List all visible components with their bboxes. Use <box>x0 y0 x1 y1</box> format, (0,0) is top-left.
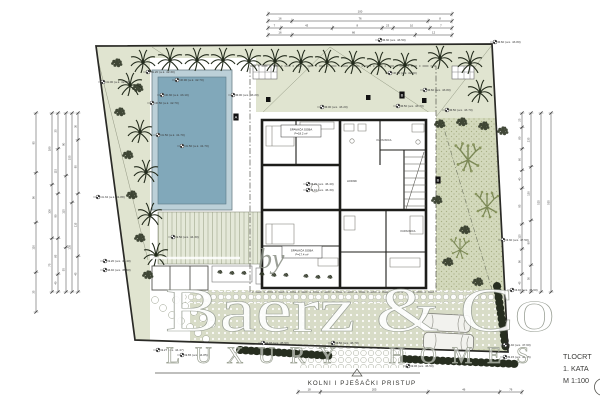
svg-text:30: 30 <box>74 124 78 128</box>
svg-text:66: 66 <box>352 31 356 35</box>
svg-text:40: 40 <box>518 177 522 181</box>
level-label: 3.10 (a.k. 46.30) <box>311 188 334 192</box>
svg-text:80: 80 <box>518 136 522 140</box>
level-label: 0.50 (a.k. 43.70) <box>450 108 473 112</box>
svg-text:76: 76 <box>509 388 513 392</box>
svg-text:90: 90 <box>32 196 36 200</box>
svg-text:95: 95 <box>518 204 522 208</box>
svg-text:75: 75 <box>48 263 52 267</box>
svg-text:60: 60 <box>518 158 522 162</box>
section-marker: B <box>399 92 404 99</box>
svg-text:205: 205 <box>372 388 377 392</box>
svg-text:95: 95 <box>32 141 36 145</box>
level-marker: -1.50 (a.k. 41.70) <box>177 144 209 148</box>
room-name-label: KUPAONICA <box>400 229 415 233</box>
room-name-label: HODNIK <box>347 179 357 183</box>
bush-icon <box>497 126 508 135</box>
level-marker: -0.80 (a.k. 42.40) <box>385 71 417 75</box>
level-label: 0.50 (a.k. 43.70) <box>401 104 424 108</box>
svg-text:76: 76 <box>358 17 362 21</box>
building <box>262 120 426 288</box>
level-label: -0.90 (a.k. 42.70) <box>180 78 204 82</box>
svg-text:85: 85 <box>54 254 58 258</box>
level-label: -1.00 (a.k. 42.20) <box>106 80 130 84</box>
level-label: -1.20 (a.k. 42.30) <box>151 70 175 74</box>
level-marker: 0.30 (a.k. 43.50) <box>375 38 406 42</box>
level-label: -1.32 (a.k. 41.88) <box>101 195 125 199</box>
room-name-label: KUPAONICA <box>376 138 391 142</box>
level-marker: -1.20 (a.k. 42.30) <box>143 70 175 74</box>
section-marker: A <box>233 114 238 121</box>
svg-text:7: 7 <box>274 24 276 28</box>
title-drawing: TLOCRT <box>563 352 592 361</box>
watermark-by: by <box>258 244 285 275</box>
svg-text:A: A <box>235 115 238 120</box>
title-floor: 1. KATA <box>563 364 589 373</box>
svg-text:90: 90 <box>518 260 522 264</box>
svg-text:555: 555 <box>547 200 551 205</box>
level-label: 2.40 (a.k. 45.60) <box>108 268 131 272</box>
level-label: 0.00 (a.k. 43.20) <box>325 105 348 109</box>
north-symbol-partial <box>595 379 600 396</box>
svg-text:90: 90 <box>54 214 58 218</box>
level-marker: -0.90 (a.k. 42.70) <box>172 78 204 82</box>
level-label: -0.30 (a.k. 43.10) <box>165 93 189 97</box>
title-scale: M 1:100 <box>563 376 589 385</box>
svg-text:130: 130 <box>527 191 531 196</box>
access-road: KOLNI I PJEŠAČKI PRISTUP <box>155 369 420 387</box>
svg-text:B: B <box>401 93 404 98</box>
level-marker: -1.00 (a.k. 42.20) <box>98 80 130 84</box>
svg-text:B: B <box>437 178 440 183</box>
svg-text:8: 8 <box>356 24 358 28</box>
level-marker: 1.20 (a.k. 46.40) <box>100 259 131 263</box>
svg-text:115: 115 <box>518 234 522 239</box>
room-label: SPAVAĆA SOBAP=17.4 m² <box>282 246 322 258</box>
svg-text:525: 525 <box>537 200 541 205</box>
svg-text:25: 25 <box>518 118 522 122</box>
svg-text:115: 115 <box>62 209 66 214</box>
level-marker: 3.10 (a.k. 46.30) <box>303 188 334 192</box>
site-plan-canvas: -1.00 (a.k. 42.20)-1.20 (a.k. 42.30)-0.9… <box>0 0 600 400</box>
level-label: -0.50 (a.k. 42.70) <box>155 101 179 105</box>
svg-text:8: 8 <box>439 17 441 21</box>
level-label: -0.80 (a.k. 42.40) <box>393 71 417 75</box>
watermark-tagline: LUXURY HOMES <box>166 343 544 368</box>
svg-text:100: 100 <box>48 209 52 214</box>
level-label: 0.60 (a.k. 43.80) <box>428 88 451 92</box>
level-marker: -1.32 (a.k. 41.88) <box>93 195 125 199</box>
pool <box>152 70 232 210</box>
svg-text:18: 18 <box>308 388 312 392</box>
level-marker: 3.20 (a.k. 46.40) <box>303 182 334 186</box>
access-road-label: KOLNI I PJEŠAČKI PRISTUP <box>308 380 417 387</box>
level-marker: 0.50 (a.k. 43.70) <box>442 108 473 112</box>
level-marker: -0.50 (a.k. 42.70) <box>147 101 179 105</box>
svg-text:115: 115 <box>54 169 58 174</box>
svg-text:7: 7 <box>440 24 442 28</box>
svg-text:90: 90 <box>62 142 66 146</box>
svg-text:16: 16 <box>278 17 282 21</box>
access-arrow-icon <box>352 369 362 376</box>
svg-text:90: 90 <box>527 241 531 245</box>
svg-text:135: 135 <box>68 244 72 249</box>
svg-text:35: 35 <box>32 290 36 294</box>
svg-text:115: 115 <box>74 222 78 227</box>
svg-text:46: 46 <box>462 388 466 392</box>
svg-text:55: 55 <box>62 268 66 272</box>
svg-text:P=18.2 m²: P=18.2 m² <box>295 132 308 136</box>
level-marker: 0.50 (a.k. 43.70) <box>393 104 424 108</box>
svg-text:155: 155 <box>68 155 72 160</box>
svg-text:100: 100 <box>358 10 363 14</box>
level-label: -1.50 (a.k. 41.70) <box>161 133 185 137</box>
level-marker: 4.30 (a.k. 47.50) <box>498 238 529 242</box>
section-marker: B <box>435 177 440 184</box>
level-marker: 0.60 (a.k. 43.80) <box>490 40 521 44</box>
level-marker: 0.00 (a.k. 43.20) <box>228 93 259 97</box>
level-label: 0.60 (a.k. 43.80) <box>498 40 521 44</box>
room-label: SPAVAĆA SOBAP=18.2 m² <box>281 125 321 137</box>
level-label: 0.00 (a.k. 43.20) <box>236 93 259 97</box>
svg-text:110: 110 <box>32 245 36 250</box>
level-label: 3.20 (a.k. 46.40) <box>311 182 334 186</box>
svg-text:12: 12 <box>432 31 436 35</box>
level-label: 1.50 (a.k. 44.30) <box>176 235 199 239</box>
level-label: 0.30 (a.k. 43.50) <box>383 38 406 42</box>
floor-plan-page: -1.00 (a.k. 42.20)-1.20 (a.k. 42.30)-0.9… <box>0 0 600 400</box>
level-marker: -1.50 (a.k. 41.70) <box>153 133 185 137</box>
svg-text:43: 43 <box>305 24 309 28</box>
svg-text:180: 180 <box>48 146 52 151</box>
svg-text:10: 10 <box>410 24 414 28</box>
svg-text:35: 35 <box>54 129 58 133</box>
level-marker: 2.40 (a.k. 45.60) <box>100 268 131 272</box>
level-label: 1.20 (a.k. 46.40) <box>108 259 131 263</box>
level-marker: 0.00 (a.k. 43.20) <box>317 105 348 109</box>
title-block: TLOCRT 1. KATA M 1:100 <box>563 352 592 385</box>
svg-text:23: 23 <box>386 24 390 28</box>
level-marker: 0.60 (a.k. 43.80) <box>420 88 451 92</box>
watermark-brand: Baerz & Co <box>165 277 555 345</box>
level-marker: 1.50 (a.k. 44.30) <box>168 235 199 239</box>
svg-text:45: 45 <box>74 272 78 276</box>
svg-text:P=17.4 m²: P=17.4 m² <box>296 253 309 257</box>
svg-text:40: 40 <box>54 281 58 285</box>
level-marker: -0.30 (a.k. 43.10) <box>157 93 189 97</box>
level-label: -1.50 (a.k. 41.70) <box>185 144 209 148</box>
svg-text:235: 235 <box>527 137 531 142</box>
svg-text:16: 16 <box>278 31 282 35</box>
svg-text:95: 95 <box>74 165 78 169</box>
